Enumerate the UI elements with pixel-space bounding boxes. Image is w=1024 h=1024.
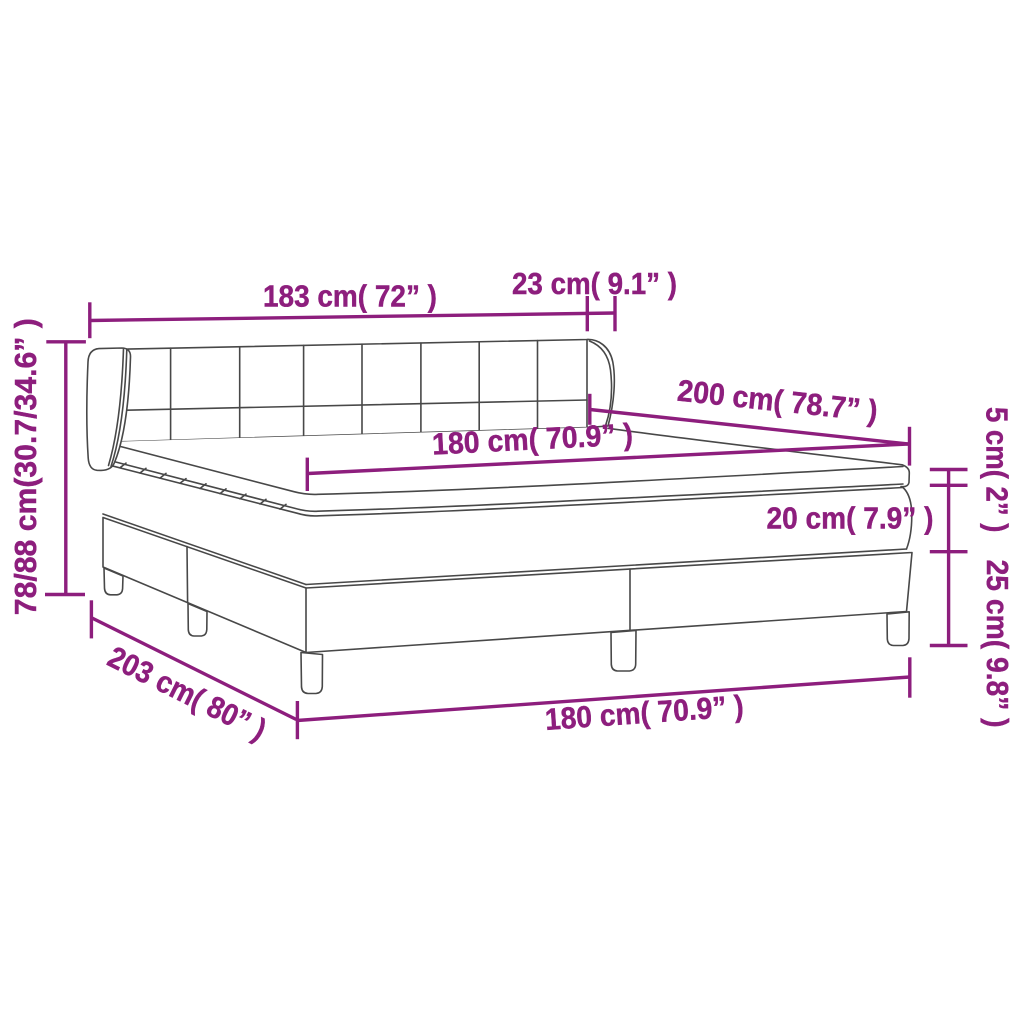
svg-text:183 cm( 72” ): 183 cm( 72” ) (263, 280, 437, 314)
svg-text:23 cm( 9.1” ): 23 cm( 9.1” ) (512, 267, 677, 301)
svg-text:5 cm( 2” ): 5 cm( 2” ) (980, 407, 1014, 533)
svg-text:20 cm( 7.9” ): 20 cm( 7.9” ) (767, 502, 934, 536)
svg-text:78/88 cm(30.7/34.6” ): 78/88 cm(30.7/34.6” ) (9, 318, 43, 615)
svg-text:25 cm( 9.8” ): 25 cm( 9.8” ) (980, 560, 1014, 728)
